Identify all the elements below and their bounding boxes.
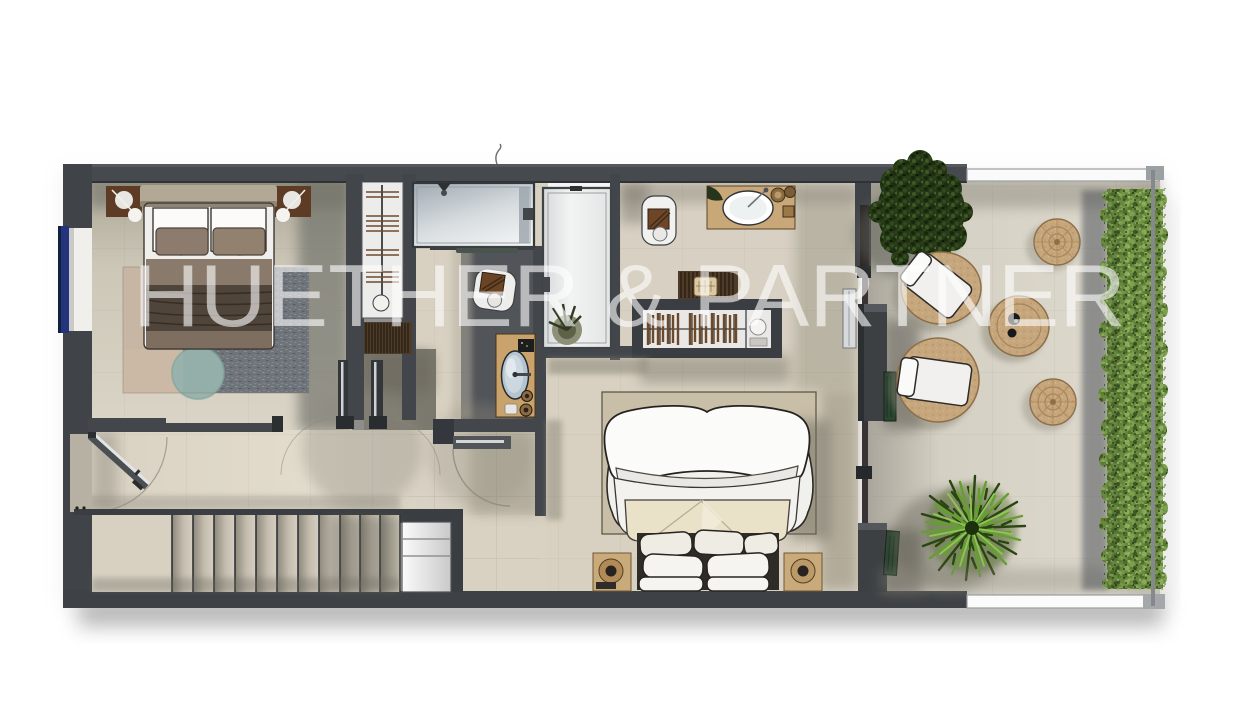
- svg-text:HUETHER & PARTNER: HUETHER & PARTNER: [133, 246, 1126, 345]
